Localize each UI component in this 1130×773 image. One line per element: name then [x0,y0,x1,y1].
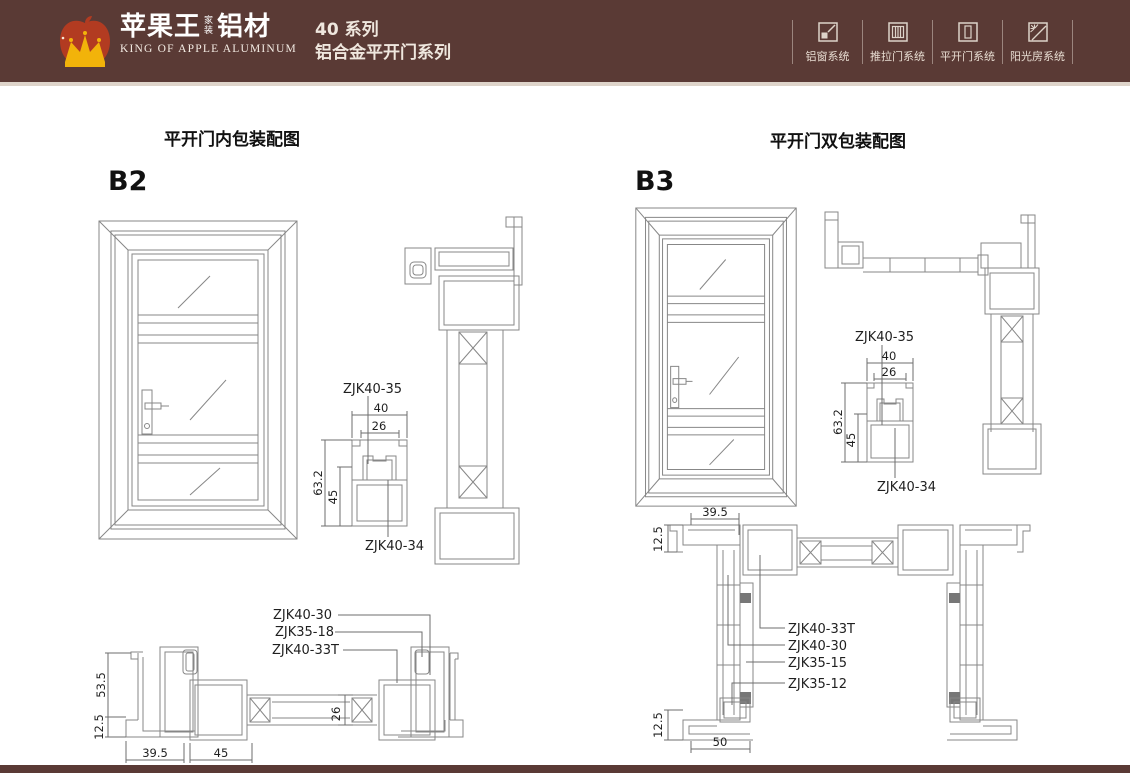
series-line-2: 铝合金平开门系列 [315,42,451,65]
nav-divider [1072,20,1073,64]
b3-dim-40: 40 [882,349,897,363]
apple-crown-icon [56,14,114,70]
b2-dim-39-5: 39.5 [142,746,168,760]
b3-dim-39-5: 39.5 [702,505,728,519]
b3-profile-top-label: ZJK40-35 [855,330,914,345]
series-line-1: 40 系列 [315,19,451,42]
b3-bottom-section-drawing: 39.5 12.5 12.5 50 ZJK40-33T ZJK40-30 ZJK… [620,495,1040,763]
b3-part-label-1: ZJK40-33T [788,622,855,637]
catalog-page: 苹果王 家 装 铝材 KING OF APPLE ALUMINUM 40 系列 … [0,0,1130,773]
b2-part-label-2: ZJK35-18 [275,625,334,640]
b3-dim-12-5-bottom: 12.5 [651,712,665,738]
b3-dim-63-2: 63.2 [831,409,845,435]
b3-part-label-4: ZJK35-12 [788,677,847,692]
nav-label: 阳光房系统 [1010,48,1065,64]
sunroom-system-icon [1026,20,1050,44]
b2-bottom-section-drawing: ZJK40-30 ZJK35-18 ZJK40-33T 53.5 12.5 39… [95,595,500,765]
nav-item-window-system[interactable]: 铝窗系统 [793,20,862,64]
b2-dim-53-5: 53.5 [94,672,108,698]
b2-profile-top-label: ZJK40-35 [343,382,402,397]
b2-dim-40: 40 [374,401,389,415]
b2-vertical-section-drawing: ZJK40-35 40 26 63.2 45 ZJK40-34 [315,212,530,572]
b2-dim-63-2: 63.2 [311,470,325,496]
brand-tag-1: 家 [204,16,214,26]
nav-item-sliding-door-system[interactable]: 推拉门系统 [863,20,932,64]
b2-dim-glass-26: 26 [329,707,343,722]
sliding-door-system-icon [886,20,910,44]
series-title: 40 系列 铝合金平开门系列 [315,19,451,65]
right-section-title: 平开门双包装配图 [713,127,963,152]
brand-logo: 苹果王 家 装 铝材 KING OF APPLE ALUMINUM [56,14,297,70]
b3-dim-26: 26 [882,365,897,379]
b3-part-label-2: ZJK40-30 [788,639,847,654]
brand-en: KING OF APPLE ALUMINUM [120,43,297,55]
nav-item-casement-door-system[interactable]: 平开门系统 [933,20,1002,64]
nav-label: 推拉门系统 [870,48,925,64]
right-section-code: B3 [635,166,674,197]
b3-part-label-3: ZJK35-15 [788,656,847,671]
header-bar: 苹果王 家 装 铝材 KING OF APPLE ALUMINUM 40 系列 … [0,0,1130,82]
b2-dim-26: 26 [372,419,387,433]
window-system-icon [816,20,840,44]
brand-cn-main: 苹果王 [120,14,201,40]
brand-cn-suffix: 铝材 [217,14,271,40]
b2-dim-45b: 45 [214,746,229,760]
nav-label: 铝窗系统 [806,48,850,64]
left-section-title: 平开门内包装配图 [107,125,357,150]
nav-item-sunroom-system[interactable]: 阳光房系统 [1003,20,1072,64]
b2-profile-bottom-label: ZJK40-34 [365,539,424,554]
product-nav: 铝窗系统 推拉门系统 平开门系统 [792,16,1073,68]
brand-tag-2: 装 [204,26,214,36]
b3-dim-50: 50 [713,735,728,749]
b2-part-label-3: ZJK40-33T [272,643,339,658]
b3-dim-12-5-top: 12.5 [651,526,665,552]
b2-part-label-1: ZJK40-30 [273,608,332,623]
b2-dim-45: 45 [326,490,340,505]
casement-door-system-icon [956,20,980,44]
nav-label: 平开门系统 [940,48,995,64]
b3-door-elevation-drawing [635,207,797,507]
b3-top-section-drawing: ZJK40-35 40 26 63.2 45 ZJK40-34 [815,200,1095,500]
brand-text: 苹果王 家 装 铝材 KING OF APPLE ALUMINUM [120,14,297,55]
b2-door-elevation-drawing [98,220,298,540]
b2-dim-12-5: 12.5 [92,714,106,740]
b3-dim-45: 45 [844,433,858,448]
footer-bar [0,765,1130,773]
b3-profile-bottom-label: ZJK40-34 [877,480,936,495]
left-section-code: B2 [108,166,147,197]
header-separator [0,82,1130,86]
